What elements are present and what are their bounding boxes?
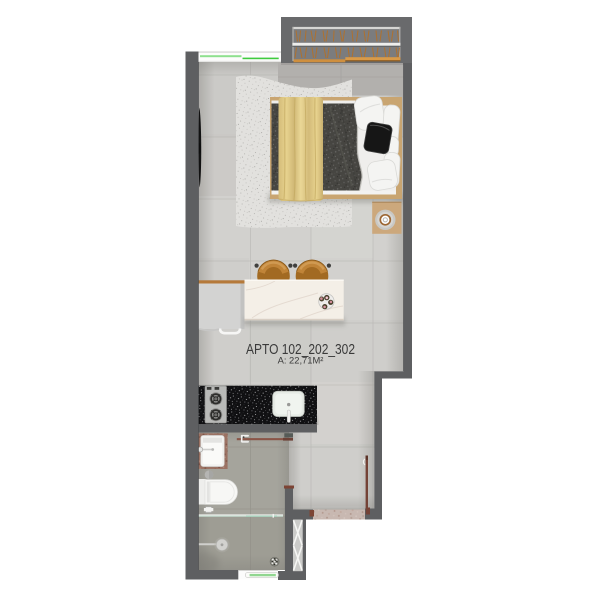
svg-text:A: 22,71M²: A: 22,71M² — [278, 355, 324, 366]
